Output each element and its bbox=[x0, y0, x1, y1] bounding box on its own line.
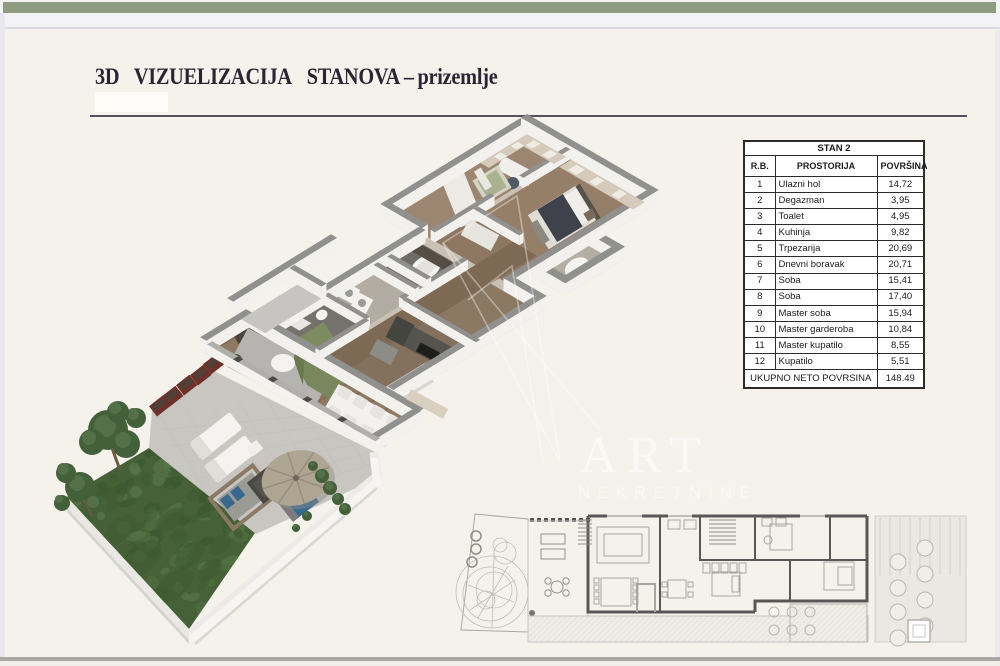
svg-text:NEKRETNINE: NEKRETNINE bbox=[578, 483, 758, 502]
svg-text:ART: ART bbox=[580, 427, 711, 484]
